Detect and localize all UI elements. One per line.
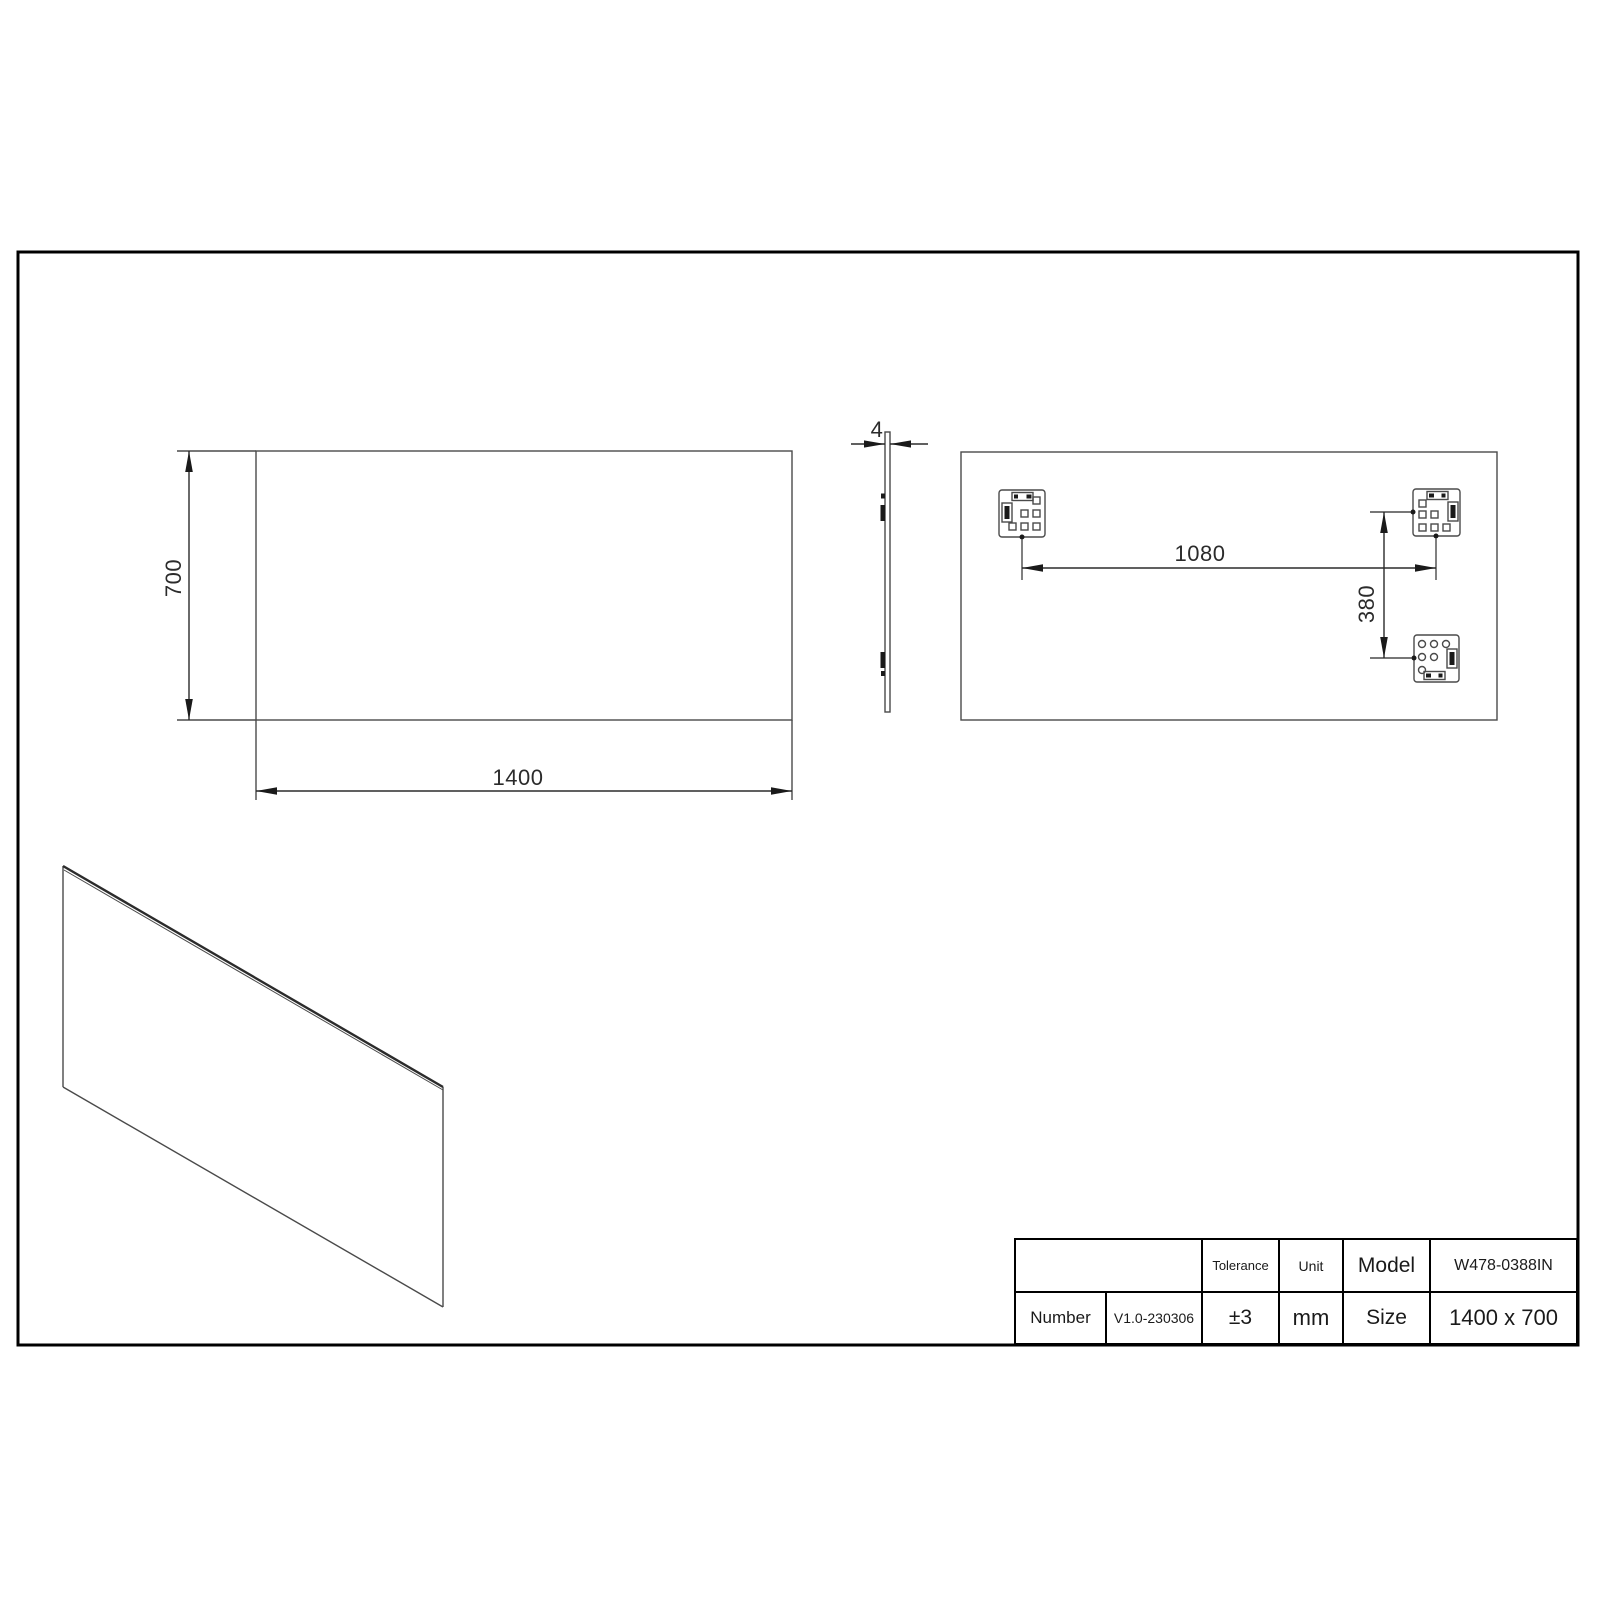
bracket-hole: [1419, 524, 1426, 531]
unit-label: Unit: [1278, 1240, 1342, 1291]
size-label: Size: [1342, 1291, 1429, 1343]
arrowhead-down-icon: [185, 699, 193, 720]
back-panel-outline: [961, 452, 1497, 720]
side-panel-outline: [885, 432, 890, 712]
bracket-spacing-h-dimension-text: 1080: [1175, 541, 1226, 566]
bracket-hole: [1431, 654, 1438, 661]
bracket-slot-pin: [1429, 494, 1434, 498]
side-view: 4: [851, 417, 928, 712]
bracket-hole: [1419, 641, 1426, 648]
bracket-hole: [1419, 654, 1426, 661]
bracket-hole: [1021, 510, 1028, 517]
bracket-slot-pin: [1005, 506, 1010, 519]
arrowhead-up-icon: [1380, 512, 1388, 533]
bracket-hole: [1419, 500, 1426, 507]
bracket-spacing-v-dimension-text: 380: [1354, 585, 1379, 623]
mounting-bracket-top-right: [1411, 489, 1461, 539]
unit-value: mm: [1278, 1291, 1342, 1343]
bracket-slot-pin: [1014, 495, 1018, 499]
tolerance-label: Tolerance: [1201, 1240, 1278, 1291]
sheet-border: [18, 252, 1578, 1345]
drawing-sheet: 700 1400 4: [0, 0, 1600, 1600]
bracket-hole: [1431, 511, 1438, 518]
bracket-slot-pin: [1442, 494, 1446, 498]
iso-bottom-edge: [63, 1087, 443, 1307]
iso-top-edge-thickness: [64, 870, 443, 1090]
arrowhead-right-icon: [771, 787, 792, 795]
bracket-hole: [1443, 641, 1450, 648]
mounting-bracket-top-left: [999, 490, 1045, 540]
arrowhead-down-icon: [1380, 637, 1388, 658]
bracket-slot-pin: [1027, 495, 1032, 499]
arrowhead-up-icon: [185, 451, 193, 472]
technical-drawing-canvas: 700 1400 4: [0, 0, 1600, 1600]
mounting-bracket-bottom-right: [1412, 635, 1460, 682]
reference-point: [1412, 656, 1417, 661]
bracket-hole: [1419, 511, 1426, 518]
bracket-hole: [1431, 641, 1438, 648]
size-value: 1400 x 700: [1429, 1291, 1576, 1343]
thickness-dimension-text: 4: [871, 417, 884, 442]
bracket-slot-pin: [1439, 674, 1443, 678]
bracket-hole: [1009, 523, 1016, 530]
model-value: W478-0388IN: [1429, 1240, 1576, 1291]
bracket-profile-mark: [881, 652, 886, 668]
bracket-slot-pin: [1426, 674, 1431, 678]
bracket-profile-mark: [881, 671, 885, 676]
bracket-slot-pin: [1451, 505, 1456, 518]
bracket-profile-mark: [881, 494, 885, 499]
arrowhead-right-icon: [1415, 564, 1436, 572]
isometric-view: [63, 866, 443, 1307]
back-view: 1080 380: [961, 452, 1497, 720]
bracket-slot-pin: [1450, 652, 1455, 665]
bracket-hole: [1021, 523, 1028, 530]
arrowhead-left-icon: [1022, 564, 1043, 572]
number-value: V1.0-230306: [1105, 1291, 1201, 1343]
bracket-profile-mark: [881, 505, 886, 521]
arrowhead-left-icon: [256, 787, 277, 795]
bracket-hole: [1033, 510, 1040, 517]
reference-point: [1434, 534, 1439, 539]
tolerance-value: ±3: [1201, 1291, 1278, 1343]
front-width-dimension-text: 1400: [493, 765, 544, 790]
title-block-empty-cell: [1016, 1240, 1201, 1291]
front-view: 700 1400: [161, 451, 792, 800]
iso-top-edge: [63, 866, 443, 1087]
reference-point: [1411, 510, 1416, 515]
front-panel-outline: [256, 451, 792, 720]
reference-point: [1020, 535, 1025, 540]
bracket-hole: [1033, 523, 1040, 530]
bracket-hole: [1431, 524, 1438, 531]
arrowhead-left-icon: [890, 440, 911, 447]
title-block: Tolerance Unit Model W478-0388IN Number …: [1014, 1238, 1578, 1345]
front-height-dimension-text: 700: [161, 559, 186, 597]
number-label: Number: [1016, 1291, 1105, 1343]
bracket-hole: [1033, 497, 1040, 504]
bracket-hole: [1443, 524, 1450, 531]
model-label: Model: [1342, 1240, 1429, 1291]
